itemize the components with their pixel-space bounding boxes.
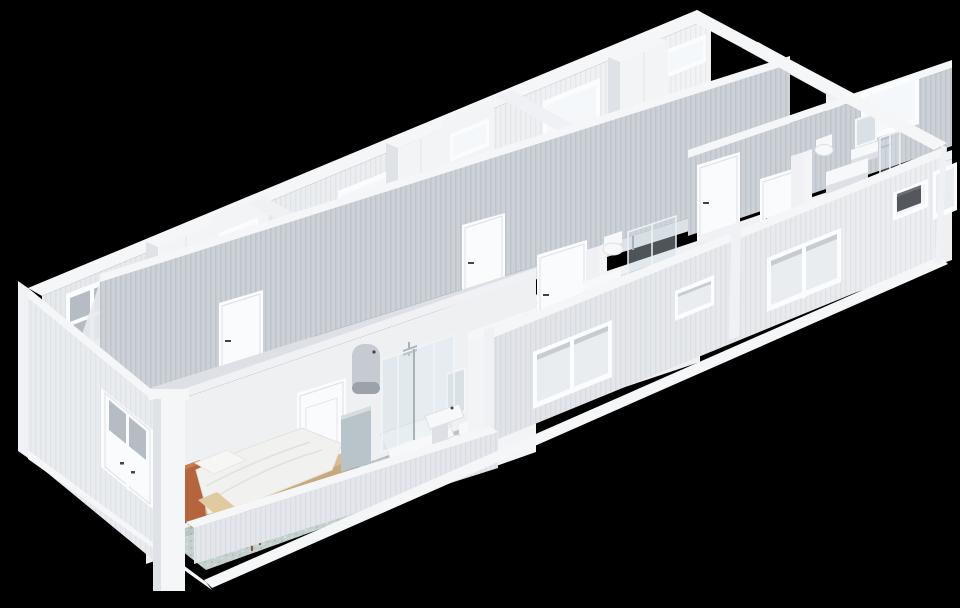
n3-mirror <box>856 113 876 147</box>
corner-post <box>149 389 189 591</box>
module-joint-seam <box>729 228 741 340</box>
end-wall-corner-cap <box>18 281 28 458</box>
isometric-building-render <box>0 0 960 608</box>
bath-half-partition <box>341 406 371 472</box>
render-canvas <box>0 0 960 608</box>
water-heater <box>352 344 380 394</box>
